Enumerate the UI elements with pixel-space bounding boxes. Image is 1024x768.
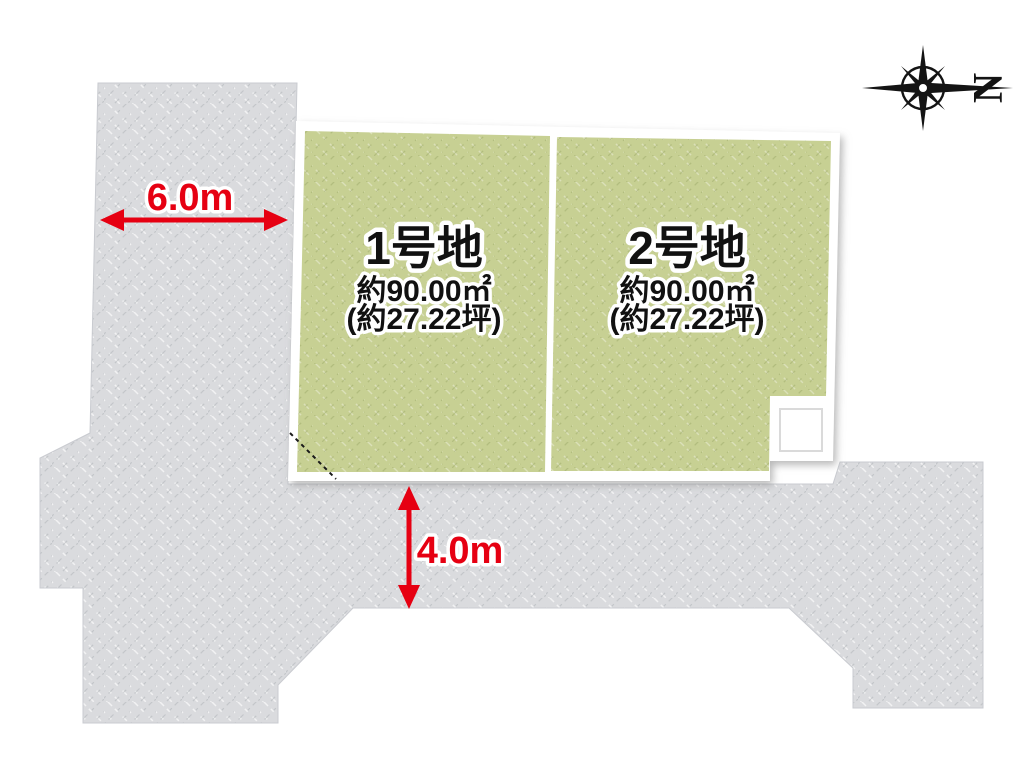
- lot-layout-diagram: 1号地 約90.00㎡ (約27.22坪) 2号地 約90.00㎡ (約27.2…: [0, 0, 1024, 768]
- compass-center-dot: [919, 84, 928, 93]
- plot-1-label: 1号地 約90.00㎡ (約27.22坪): [346, 222, 501, 336]
- plot-2-corner-notch: [780, 409, 822, 451]
- compass-north-label: N: [966, 73, 1012, 103]
- plot-2-area-tsubo: (約27.22坪): [609, 303, 764, 336]
- plot-1-area-tsubo: (約27.22坪): [346, 303, 501, 336]
- west-road-dimension-label: 6.0m: [147, 177, 234, 219]
- plot-2-label: 2号地 約90.00㎡ (約27.22坪): [609, 222, 764, 336]
- site-plan-canvas: 1号地 約90.00㎡ (約27.22坪) 2号地 約90.00㎡ (約27.2…: [0, 0, 1024, 768]
- plot-1-name: 1号地: [365, 222, 483, 274]
- south-road-dimension-label: 4.0m: [417, 530, 504, 572]
- plot-2-name: 2号地: [628, 222, 746, 274]
- compass-icon: N: [862, 45, 1013, 131]
